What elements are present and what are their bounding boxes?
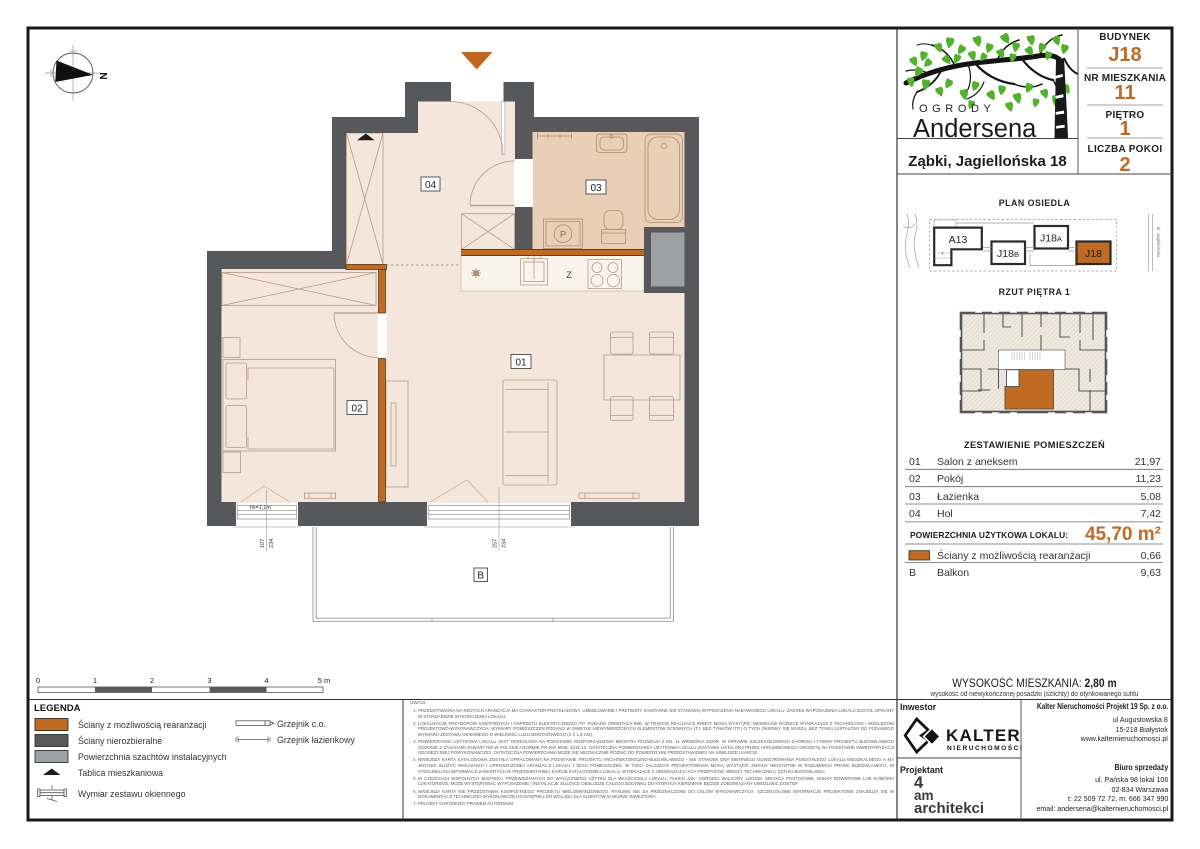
svg-text:al. Jagiellońska: al. Jagiellońska [1156, 227, 1161, 258]
svg-text:01: 01 [515, 358, 527, 369]
svg-text:3: 3 [207, 676, 211, 685]
svg-text:J18A: J18A [1040, 233, 1062, 245]
svg-text:Z: Z [566, 270, 572, 281]
svg-text:fix=1,1m: fix=1,1m [250, 505, 271, 511]
svg-text:B: B [477, 571, 484, 582]
svg-text:P: P [560, 229, 566, 240]
svg-text:234: 234 [502, 539, 508, 548]
svg-text:N: N [97, 72, 108, 79]
svg-text:A13: A13 [949, 234, 968, 246]
svg-text:J18: J18 [1085, 248, 1102, 260]
svg-text:107: 107 [260, 539, 266, 548]
svg-text:J18B: J18B [997, 248, 1019, 260]
svg-text:4: 4 [264, 676, 268, 685]
svg-text:04: 04 [425, 180, 437, 191]
svg-text:257: 257 [493, 539, 499, 548]
svg-text:2: 2 [150, 676, 154, 685]
svg-text:5 m: 5 m [318, 676, 331, 685]
svg-text:03: 03 [590, 183, 602, 194]
svg-text:234: 234 [269, 539, 275, 548]
svg-text:0: 0 [36, 676, 40, 685]
svg-text:A: A [941, 251, 944, 256]
svg-text:1: 1 [93, 676, 97, 685]
svg-text:02: 02 [351, 404, 363, 415]
